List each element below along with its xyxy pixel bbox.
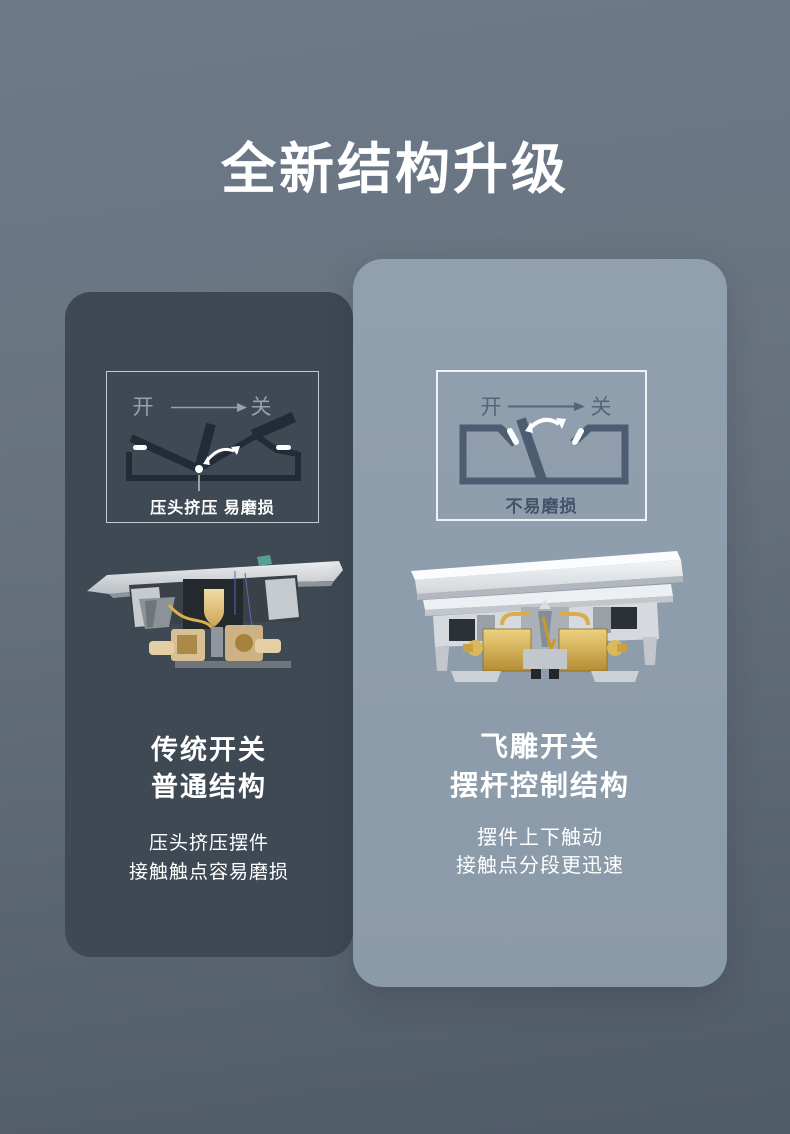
card-heading: 传统开关 普通结构 — [65, 732, 353, 806]
feidiao-switch-cross-section — [405, 545, 685, 682]
page-title: 全新结构升级 — [0, 124, 790, 204]
diagram-caption: 压头挤压 易磨损 — [107, 494, 318, 518]
promo-page: 全新结构升级 开 关 — [0, 0, 790, 1134]
heading-line-2: 普通结构 — [65, 769, 353, 806]
body-line-2: 接触触点容易磨损 — [65, 858, 353, 887]
heading-line-2: 摆杆控制结构 — [353, 766, 727, 805]
heading-line-1: 飞雕开关 — [353, 727, 727, 766]
diagram-traditional-mechanism: 开 关 — [106, 371, 319, 523]
heading-line-1: 传统开关 — [65, 732, 353, 769]
card-body-copy: 摆件上下触动 接触点分段更迅速 — [353, 824, 727, 880]
traditional-switch-cross-section — [87, 553, 343, 673]
diagram-pendulum-mechanism: 开 关 不易磨损 — [436, 370, 647, 521]
body-line-1: 摆件上下触动 — [353, 824, 727, 852]
card-feidiao-switch: 开 关 不易磨损 — [353, 259, 727, 987]
body-line-1: 压头挤压摆件 — [65, 829, 353, 858]
card-traditional-switch: 开 关 — [65, 292, 353, 957]
card-body-copy: 压头挤压摆件 接触触点容易磨损 — [65, 829, 353, 887]
card-heading: 飞雕开关 摆杆控制结构 — [353, 727, 727, 805]
diagram-caption: 不易磨损 — [438, 492, 645, 517]
body-line-2: 接触点分段更迅速 — [353, 852, 727, 880]
